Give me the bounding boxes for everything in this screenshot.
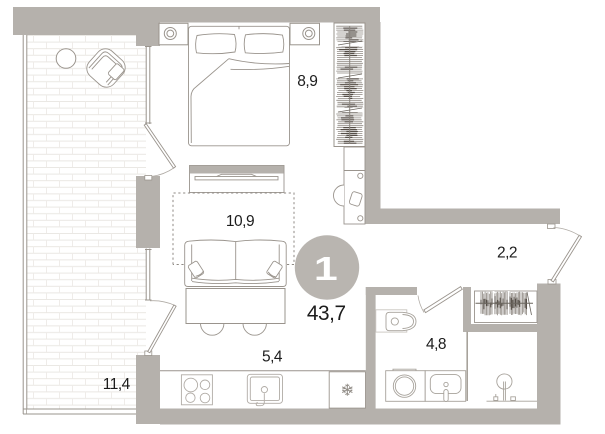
svg-text:43,7: 43,7 bbox=[307, 302, 346, 325]
svg-text:1: 1 bbox=[314, 251, 338, 288]
svg-text:11,4: 11,4 bbox=[103, 376, 131, 393]
svg-text:10,9: 10,9 bbox=[226, 213, 254, 230]
svg-text:4,8: 4,8 bbox=[426, 336, 446, 353]
svg-text:2,2: 2,2 bbox=[497, 245, 517, 262]
svg-text:5,4: 5,4 bbox=[262, 349, 283, 366]
svg-text:8,9: 8,9 bbox=[297, 73, 317, 90]
